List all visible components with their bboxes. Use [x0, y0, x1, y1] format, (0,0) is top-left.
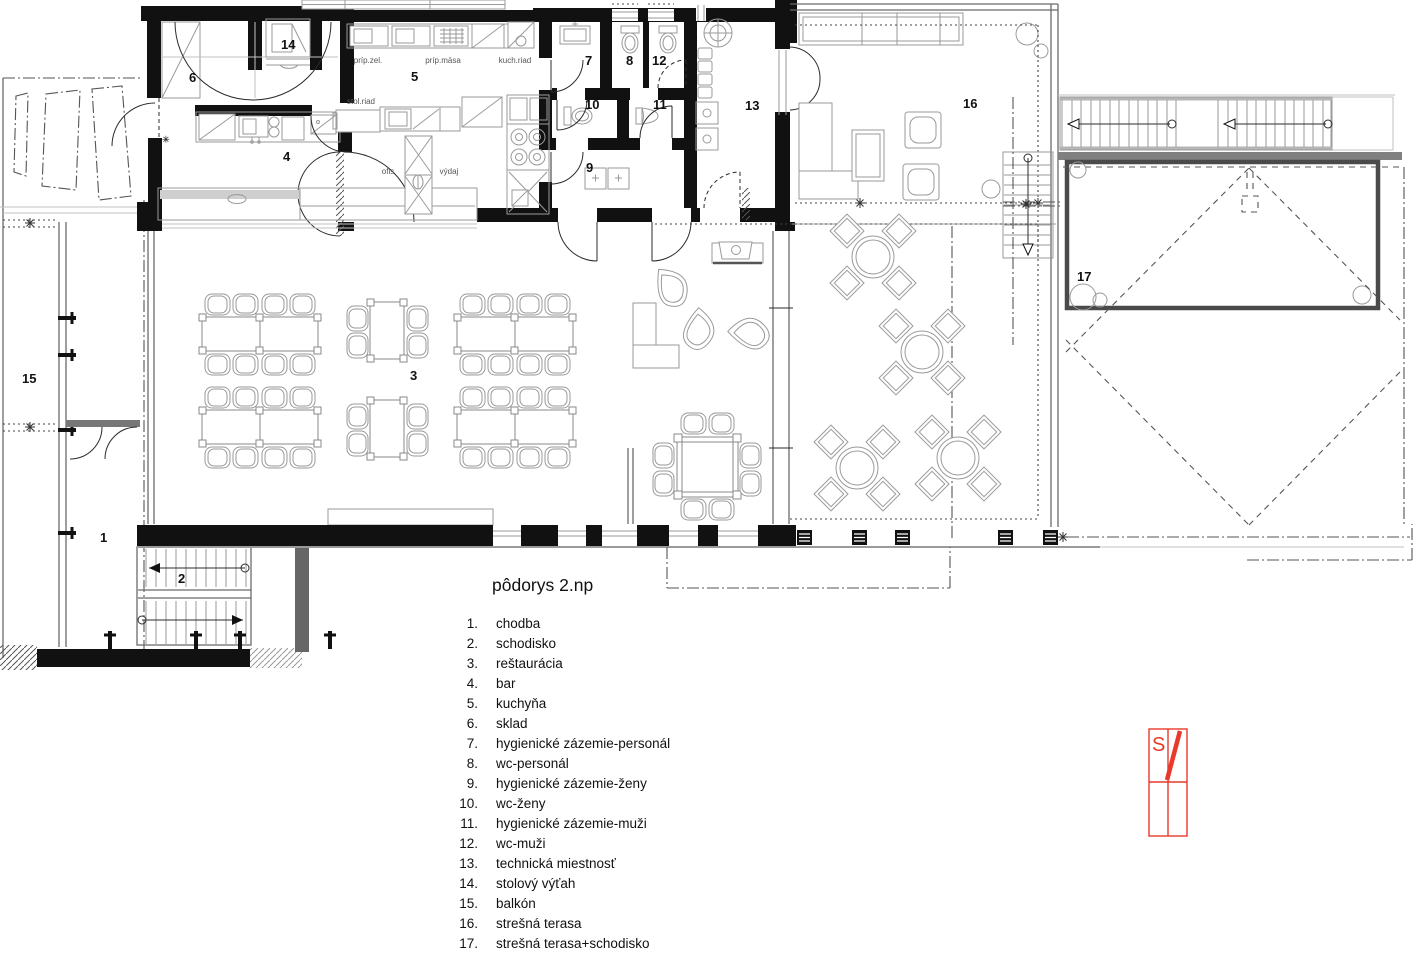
staircase-2	[137, 547, 251, 645]
legend-num: 1.	[467, 616, 478, 631]
roof-terrace-16	[790, 4, 1058, 258]
dining-table-8	[454, 294, 576, 375]
room-label-9: 9	[586, 160, 593, 175]
dining-table-8	[199, 387, 321, 468]
legend-label: wc-personál	[495, 756, 569, 771]
annotation-stol-riad: stol.riad	[347, 97, 375, 106]
legend-label: strešná terasa	[496, 916, 582, 931]
south-facade	[137, 448, 1404, 547]
annotation-prip-zel: príp.zel.	[354, 56, 382, 65]
annotation-prip-masa: príp.mäsa	[425, 56, 461, 65]
room-label-10: 10	[585, 97, 599, 112]
legend-num: 11.	[460, 816, 478, 831]
room-label-5: 5	[411, 69, 418, 84]
floor-plan-drawing: 1 2 3 4 5 6 7 8 9 10 11 12 13 14 15 16 1…	[0, 0, 1417, 958]
legend-label: sklad	[496, 716, 528, 731]
legend-num: 2.	[467, 636, 478, 651]
staircase-side	[1003, 152, 1053, 258]
square-table-8	[653, 413, 761, 520]
room-label-1: 1	[100, 530, 107, 545]
room-label-6: 6	[189, 70, 196, 85]
legend: 1.chodba 2.schodisko 3.reštaurácia 4.bar…	[459, 616, 670, 951]
legend-label: wc-muži	[495, 836, 546, 851]
legend-num: 3.	[467, 656, 478, 671]
room-label-12: 12	[652, 53, 666, 68]
legend-num: 13.	[459, 856, 478, 871]
legend-num: 16.	[459, 916, 478, 931]
reception-desk	[712, 242, 763, 263]
legend-label: hygienické zázemie-personál	[496, 736, 670, 751]
annotation-ofis: ofis	[382, 167, 394, 176]
legend-num: 15.	[459, 896, 478, 911]
dining-table-4	[347, 397, 428, 460]
terrace-table	[830, 214, 916, 300]
room-label-2: 2	[178, 571, 185, 586]
annotation-kuch-riad: kuch.riad	[499, 56, 531, 65]
north-letter: S	[1152, 734, 1165, 756]
legend-num: 9.	[467, 776, 478, 791]
legend-label: strešná terasa+schodisko	[496, 936, 649, 951]
legend-label: kuchyňa	[496, 696, 547, 711]
room-3-restaurant	[148, 231, 793, 524]
legend-label: chodba	[496, 616, 541, 631]
legend-num: 6.	[467, 716, 478, 731]
legend-label: stolový výťah	[496, 876, 575, 891]
room-label-11: 11	[653, 97, 667, 112]
page-title: pôdorys 2.np	[492, 575, 593, 595]
room-label-3: 3	[410, 368, 417, 383]
room-label-13: 13	[745, 98, 759, 113]
legend-label: reštaurácia	[496, 656, 563, 671]
legend-num: 10.	[459, 796, 478, 811]
annotation-vydaj: výdaj	[440, 167, 459, 176]
dining-table-8	[199, 294, 321, 375]
room-label-4: 4	[283, 149, 291, 164]
legend-num: 5.	[467, 696, 478, 711]
legend-label: technická miestnosť	[496, 856, 617, 871]
north-arrow: S	[1149, 729, 1187, 836]
legend-num: 17.	[459, 936, 478, 951]
dining-table-4	[347, 299, 428, 362]
floor-plan-page: 1 2 3 4 5 6 7 8 9 10 11 12 13 14 15 16 1…	[0, 0, 1417, 958]
legend-num: 7.	[467, 736, 478, 751]
terrace-table	[814, 425, 900, 511]
roof-terrace-17	[1003, 95, 1412, 560]
legend-label: hygienické zázemie-ženy	[496, 776, 647, 791]
legend-num: 8.	[467, 756, 478, 771]
room-label-17: 17	[1077, 269, 1091, 284]
room-label-16: 16	[963, 96, 977, 111]
legend-label: schodisko	[496, 636, 556, 651]
room-label-14: 14	[281, 37, 296, 52]
legend-label: hygienické zázemie-muži	[496, 816, 647, 831]
room-label-8: 8	[626, 53, 633, 68]
lounge-corner	[633, 269, 774, 368]
legend-num: 12.	[459, 836, 478, 851]
terrace-table	[915, 415, 1001, 501]
legend-num: 4.	[467, 676, 478, 691]
balcony-left-zone	[0, 78, 147, 658]
dining-table-8	[454, 387, 576, 468]
legend-label: balkón	[496, 896, 536, 911]
room-label-15: 15	[22, 371, 36, 386]
legend-num: 14.	[459, 876, 478, 891]
room-label-7: 7	[585, 53, 592, 68]
legend-label: bar	[496, 676, 516, 691]
legend-label: wc-ženy	[495, 796, 546, 811]
staircase-top	[1060, 97, 1332, 150]
